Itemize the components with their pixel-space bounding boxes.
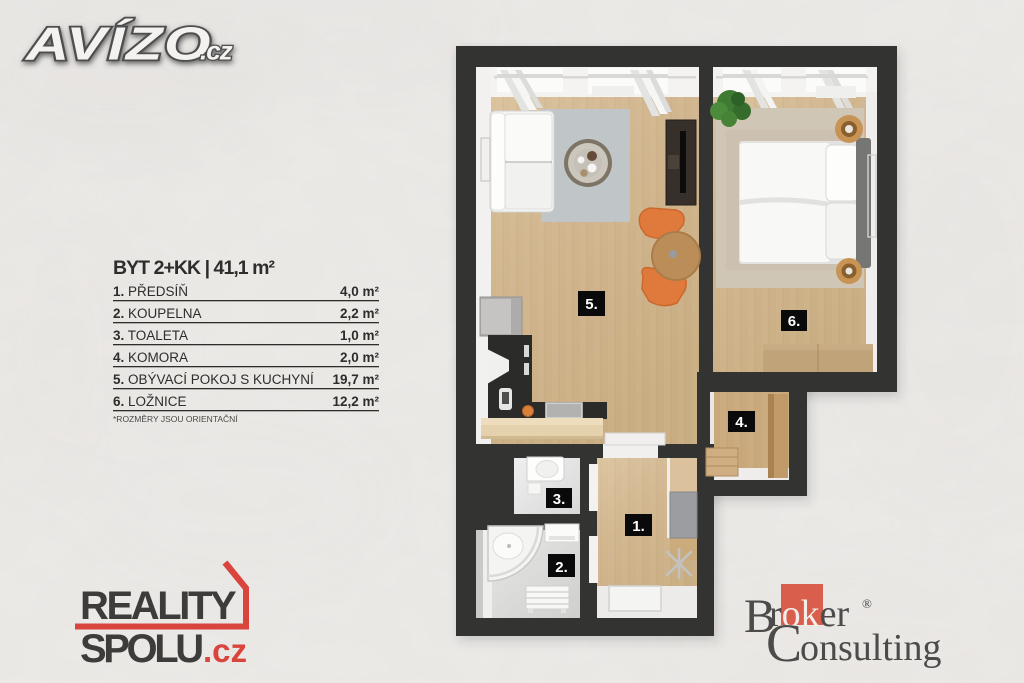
svg-text:4.: 4. [735, 414, 748, 431]
svg-text:1,0 m²: 1,0 m² [340, 328, 380, 343]
svg-text:AVÍZO: AVÍZO [24, 18, 212, 70]
svg-text:6.: 6. [788, 313, 801, 330]
svg-text:BYT 2+KK | 41,1 m²: BYT 2+KK | 41,1 m² [113, 257, 276, 279]
svg-text:C: C [766, 613, 802, 673]
svg-text:2,2 m²: 2,2 m² [340, 306, 380, 321]
svg-text:.cz: .cz [200, 36, 233, 66]
svg-text:5. OBÝVACÍ POKOJ S KUCHYNÍ: 5. OBÝVACÍ POKOJ S KUCHYNÍ [113, 372, 314, 387]
svg-text:.cz: .cz [203, 632, 247, 669]
svg-text:onsulting: onsulting [800, 627, 941, 669]
svg-text:1.: 1. [632, 518, 645, 535]
svg-text:REALITY: REALITY [80, 584, 237, 628]
svg-text:6. LOŽNICE: 6. LOŽNICE [113, 394, 187, 409]
svg-text:12,2 m²: 12,2 m² [332, 394, 379, 409]
svg-text:®: ® [862, 596, 872, 611]
svg-text:4. KOMORA: 4. KOMORA [113, 350, 188, 365]
svg-text:3. TOALETA: 3. TOALETA [113, 328, 188, 343]
svg-text:2. KOUPELNA: 2. KOUPELNA [113, 306, 202, 321]
svg-text:*ROZMĚRY JSOU ORIENTAČNÍ: *ROZMĚRY JSOU ORIENTAČNÍ [113, 414, 238, 424]
svg-text:3.: 3. [553, 491, 566, 508]
svg-text:19,7 m²: 19,7 m² [332, 372, 379, 387]
svg-text:1. PŘEDSÍŇ: 1. PŘEDSÍŇ [113, 284, 188, 299]
svg-text:4,0 m²: 4,0 m² [340, 284, 380, 299]
svg-text:2.: 2. [555, 559, 568, 576]
svg-text:SPOLU: SPOLU [80, 627, 202, 671]
svg-text:5.: 5. [585, 296, 598, 313]
svg-text:2,0 m²: 2,0 m² [340, 350, 380, 365]
